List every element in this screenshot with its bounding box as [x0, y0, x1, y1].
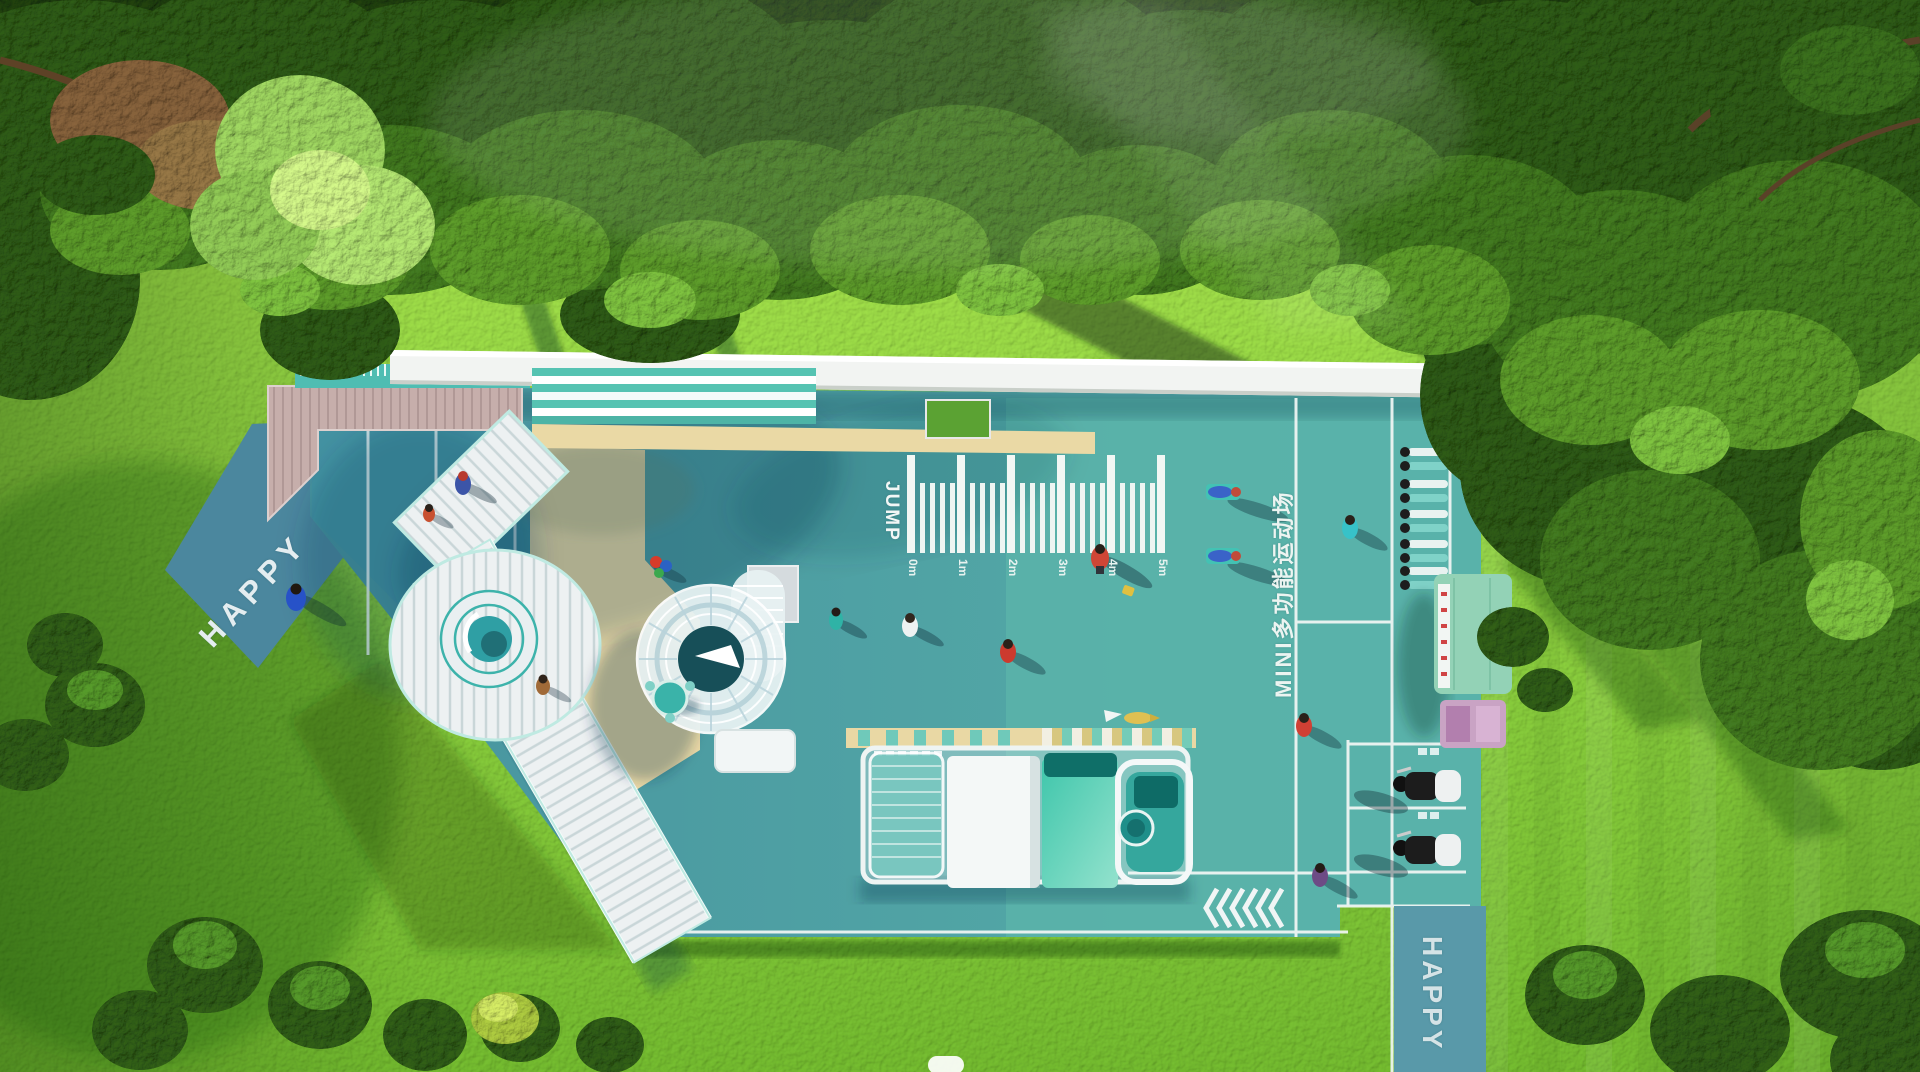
green-mat [926, 400, 990, 438]
jump-mark-0m: 0m [906, 559, 920, 576]
court-name-text: MINI多功能运动场 [1266, 490, 1298, 698]
jump-ruler [907, 455, 1165, 553]
jump-mark-4m: 4m [1106, 559, 1120, 576]
jump-mark-1m: 1m [956, 559, 970, 576]
bottom-center-tab[interactable] [928, 1056, 964, 1072]
jump-mark-2m: 2m [1006, 559, 1020, 576]
ring-feature [441, 591, 537, 687]
jump-mark-5m: 5m [1156, 559, 1170, 576]
train-structure [846, 728, 1196, 902]
happy-text-bottom: HAPPY [1416, 936, 1448, 1052]
jump-mark-3m: 3m [1056, 559, 1070, 576]
striped-benches [532, 368, 816, 424]
render-canvas: HAPPY JUMP 0m 1m 2m 3m 4m 5m MINI多功能运动场 … [0, 0, 1920, 1072]
jump-text: JUMP [880, 481, 902, 542]
